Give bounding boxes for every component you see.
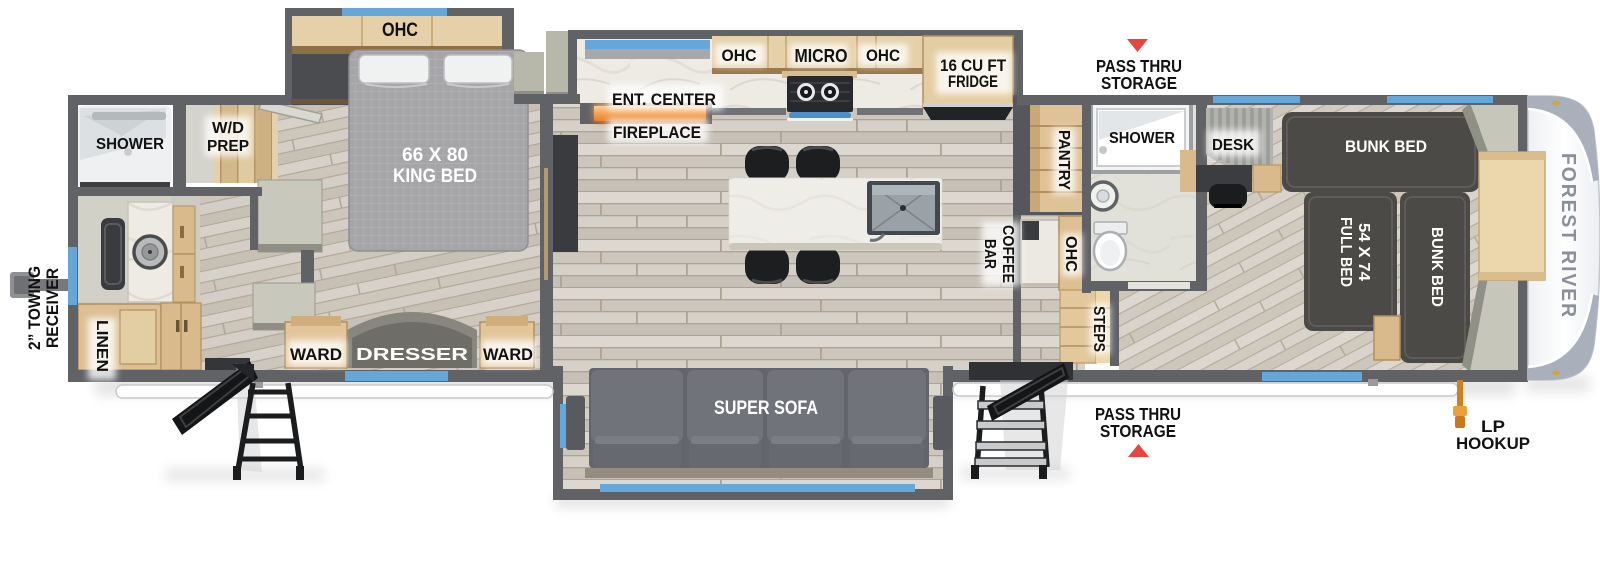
svg-text:W/D: W/D — [212, 120, 244, 137]
svg-text:SHOWER: SHOWER — [96, 136, 164, 153]
svg-text:OHC: OHC — [866, 46, 900, 65]
svg-text:FIREPLACE: FIREPLACE — [613, 124, 701, 142]
svg-text:ENT. CENTER: ENT. CENTER — [612, 91, 716, 109]
svg-text:FRIDGE: FRIDGE — [948, 73, 998, 91]
svg-text:KING BED: KING BED — [393, 166, 477, 187]
svg-text:66 X 80: 66 X 80 — [402, 145, 468, 166]
svg-text:BAR: BAR — [981, 239, 998, 269]
svg-text:FULL BED: FULL BED — [1337, 217, 1354, 287]
svg-text:DRESSER: DRESSER — [356, 344, 468, 364]
svg-text:HOOKUP: HOOKUP — [1456, 434, 1530, 453]
svg-text:WARD: WARD — [290, 345, 342, 364]
svg-text:OHC: OHC — [1062, 236, 1079, 272]
svg-text:STORAGE: STORAGE — [1100, 421, 1176, 441]
svg-text:FOREST RIVER: FOREST RIVER — [1557, 153, 1579, 319]
svg-text:STEPS: STEPS — [1090, 306, 1107, 352]
svg-text:COFFEE: COFFEE — [999, 225, 1016, 283]
svg-text:LINEN: LINEN — [93, 320, 110, 372]
svg-text:SUPER SOFA: SUPER SOFA — [714, 398, 818, 419]
svg-text:BUNK BED: BUNK BED — [1428, 227, 1445, 307]
svg-text:SHOWER: SHOWER — [1109, 130, 1175, 147]
svg-text:BUNK BED: BUNK BED — [1345, 137, 1427, 156]
svg-text:PREP: PREP — [207, 138, 249, 155]
svg-text:MICRO: MICRO — [795, 46, 848, 66]
svg-text:2” TOWING: 2” TOWING — [26, 266, 44, 350]
svg-text:STORAGE: STORAGE — [1101, 73, 1177, 93]
svg-text:PANTRY: PANTRY — [1055, 130, 1072, 190]
svg-text:RECEIVER: RECEIVER — [44, 268, 62, 348]
svg-text:OHC: OHC — [722, 46, 757, 65]
svg-text:OHC: OHC — [382, 20, 418, 41]
svg-text:54 X 74: 54 X 74 — [1355, 223, 1372, 281]
svg-text:WARD: WARD — [483, 345, 533, 364]
svg-text:DESK: DESK — [1212, 137, 1254, 154]
